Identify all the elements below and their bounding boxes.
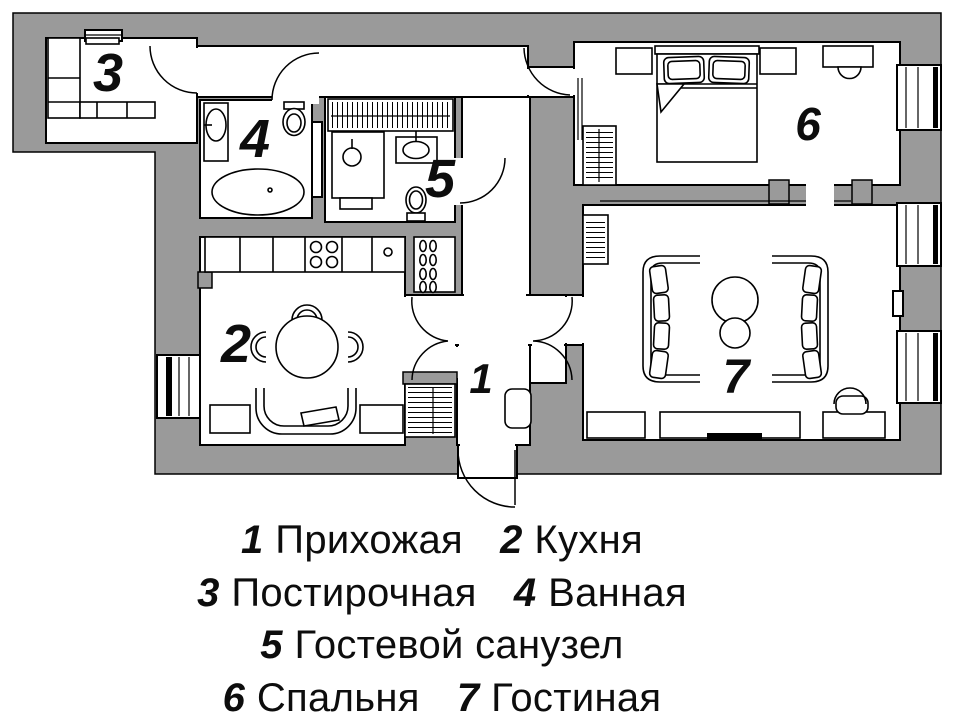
wall-recess (893, 291, 903, 316)
legend-label: Ванная (548, 571, 687, 615)
legend: 1Прихожая 2Кухня 3Постирочная 4Ванная 5Г… (0, 514, 884, 720)
nightstand-left (616, 48, 652, 74)
wc-toilet-icon (406, 187, 426, 221)
kitchen-counter (205, 237, 405, 272)
kitchen-stool-left (210, 405, 250, 433)
nightstand-right (760, 48, 796, 74)
shower-icon (332, 132, 384, 209)
bathroom-niche (312, 122, 322, 197)
entrance-opening (458, 445, 517, 478)
floor-plan: 1 2 3 4 5 6 7 (0, 0, 960, 512)
legend-label: Гостевой санузел (295, 623, 624, 667)
legend-item-bathroom: 4Ванная (514, 567, 687, 620)
hall-mid-floor (405, 295, 566, 345)
kitchen-stool-right (360, 405, 403, 433)
tv-icon (707, 433, 762, 439)
legend-num: 7 (457, 676, 479, 720)
bed-icon (655, 46, 759, 162)
kitchen-wall-pier (198, 272, 212, 288)
legend-label: Гостиная (491, 676, 661, 720)
legend-num: 5 (260, 623, 282, 667)
shoe-cabinet (414, 237, 455, 293)
room-label-2: 2 (220, 314, 251, 374)
bathtub-icon (212, 169, 304, 215)
bedroom-wardrobe (583, 126, 616, 185)
legend-item-kitchen: 2Кухня (500, 514, 643, 567)
legend-item-living: 7Гостиная (457, 672, 662, 720)
room-label-5: 5 (425, 149, 456, 209)
hall-north-floor (462, 97, 530, 295)
coffee-table-large (712, 277, 758, 323)
legend-label: Спальня (257, 676, 420, 720)
sofa-right (772, 256, 828, 382)
legend-num: 6 (223, 676, 245, 720)
corridor-floor (197, 46, 528, 97)
legend-num: 3 (197, 571, 219, 615)
corridor-wardrobe (328, 99, 453, 131)
legend-item-hallway: 1Прихожая (241, 514, 463, 567)
room-label-3: 3 (93, 43, 123, 103)
coffee-table-small (720, 318, 750, 348)
living-shelf (583, 215, 608, 264)
room-label-1: 1 (469, 355, 492, 402)
legend-num: 4 (514, 571, 536, 615)
legend-label: Прихожая (275, 518, 463, 562)
hall-pocket-floor (530, 345, 566, 383)
doormat (505, 389, 531, 428)
sofa-left (643, 256, 700, 382)
bathroom-sink-icon (204, 103, 228, 161)
legend-item-guest-wc: 5Гостевой санузел (260, 619, 623, 672)
legend-row-2: 3Постирочная 4Ванная (0, 567, 884, 620)
hall-wardrobe-top (403, 372, 457, 384)
legend-num: 2 (500, 518, 522, 562)
legend-row-3: 5Гостевой санузел (0, 619, 884, 672)
legend-row-1: 1Прихожая 2Кухня (0, 514, 884, 567)
legend-item-bedroom: 6Спальня (223, 672, 420, 720)
legend-label: Постирочная (231, 571, 476, 615)
room-label-4: 4 (239, 109, 270, 169)
legend-row-4: 6Спальня 7Гостиная (0, 672, 884, 720)
legend-item-laundry: 3Постирочная (197, 567, 477, 620)
legend-num: 1 (241, 518, 263, 562)
bathroom-toilet-icon (283, 102, 305, 136)
corridor-east-floor (528, 67, 574, 97)
sliding-door-handle-right (852, 180, 872, 204)
tv-cabinet-left (587, 412, 645, 438)
room-label-7: 7 (723, 351, 752, 404)
room-label-6: 6 (795, 98, 821, 150)
legend-label: Кухня (534, 518, 643, 562)
hall-wardrobe (405, 384, 455, 437)
floor-plan-page: 1 2 3 4 5 6 7 1Прихожая 2Кухня 3Постироч… (0, 0, 960, 720)
